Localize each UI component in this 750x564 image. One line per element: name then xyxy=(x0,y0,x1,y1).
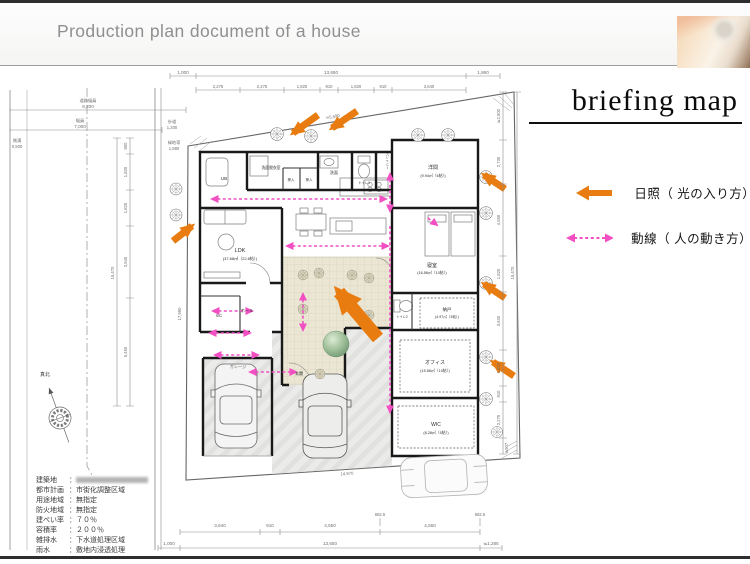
legend-sunlight: 日照（ 光の入り方） xyxy=(576,183,750,202)
svg-text:8,200: 8,200 xyxy=(82,104,94,109)
room-label-ub: UB xyxy=(221,176,227,181)
legend-circulation: 動線（ 人の動き方） xyxy=(566,228,750,247)
symbol-tree-green xyxy=(323,331,349,357)
svg-text:0,500: 0,500 xyxy=(12,144,23,149)
room-label-toilet1: トイレ1 xyxy=(358,181,370,185)
svg-text:道路幅員: 道路幅員 xyxy=(80,97,98,104)
svg-text:3,640: 3,640 xyxy=(214,523,226,528)
room-area-office: (15.56㎡（10帖）) xyxy=(420,368,450,373)
site-info-row: 建ぺい率：７０％ xyxy=(36,516,148,526)
svg-text:13,650: 13,650 xyxy=(324,70,338,75)
compass-icon xyxy=(39,384,80,446)
room-label-sanitary: 洗面脱衣室 xyxy=(262,165,281,170)
svg-text:17,990: 17,990 xyxy=(177,307,182,320)
svg-text:側溝: 側溝 xyxy=(13,137,22,144)
svg-text:3,640: 3,640 xyxy=(496,315,501,326)
slide-header: Production plan document of a house xyxy=(0,3,750,66)
site-info-row: 容積率：２００％ xyxy=(36,526,148,536)
orange-solid-arrow-icon xyxy=(576,185,612,201)
svg-text:4,550: 4,550 xyxy=(496,214,501,225)
slide: Production plan document of a house xyxy=(0,0,750,564)
room-label-wic: WIC xyxy=(431,422,441,428)
room-label-closet1: 押入 xyxy=(288,177,296,182)
svg-text:15,470: 15,470 xyxy=(110,266,115,279)
site-info-row: 雨水：敷地内浸透処理 xyxy=(36,546,148,556)
site-info-row: 建築地： xyxy=(36,476,148,486)
svg-text:2,275: 2,275 xyxy=(496,414,501,425)
svg-text:1,860: 1,860 xyxy=(477,70,489,75)
svg-text:3,640: 3,640 xyxy=(424,84,435,89)
room-label-sic: SIC xyxy=(216,313,223,318)
room-area-ldk: (37.68㎡（22.8帖）) xyxy=(223,255,258,261)
site-address-redacted xyxy=(76,477,148,483)
room-area-nando: (4.97㎡（3帖）) xyxy=(435,314,459,319)
svg-text:800: 800 xyxy=(123,142,128,150)
svg-text:1,880: 1,880 xyxy=(169,146,180,151)
room-label-bedroom: 寝室 xyxy=(427,262,437,269)
room-label-yoma: 洋間 xyxy=(428,164,438,171)
svg-text:≒2,500: ≒2,500 xyxy=(496,108,501,123)
svg-text:910: 910 xyxy=(266,523,274,528)
room-label-nando: 納戸 xyxy=(443,306,452,313)
site-info-row: 都市計画：市街化調整区域 xyxy=(36,486,148,496)
svg-text:2,275: 2,275 xyxy=(213,84,224,89)
room-label-toilet2: トイレ2 xyxy=(396,315,408,319)
pink-dashed-arrow-icon xyxy=(566,231,613,245)
legend-circulation-label: 動線（ 人の動き方） xyxy=(631,228,750,247)
photo-thumbnail xyxy=(677,16,750,68)
site-info-block: 建築地： 都市計画：市街化調整区域 用途地域：無指定 防火地域：無指定 建ぺい率… xyxy=(36,476,148,556)
svg-text:≒907: ≒907 xyxy=(504,442,509,453)
room-label-wash: 洗面 xyxy=(330,169,338,175)
svg-text:≒5,590: ≒5,590 xyxy=(325,113,340,120)
svg-text:≒1,285: ≒1,285 xyxy=(483,541,499,546)
svg-text:7,000: 7,000 xyxy=(74,124,86,129)
room-label-hall: ホール xyxy=(241,308,254,313)
svg-text:2,730: 2,730 xyxy=(496,156,501,167)
svg-text:1,820: 1,820 xyxy=(123,166,128,177)
room-label-closet2: 押入 xyxy=(306,177,314,182)
svg-text:歩道: 歩道 xyxy=(168,118,177,125)
site-info-row: 用途地域：無指定 xyxy=(36,496,148,506)
car-street xyxy=(400,454,488,498)
room-area-wic: (8.28㎡（5帖）) xyxy=(423,430,449,435)
svg-text:幅員: 幅員 xyxy=(76,117,85,124)
svg-text:1,000: 1,000 xyxy=(163,541,175,546)
site-info-row: 防火地域：無指定 xyxy=(36,506,148,516)
room-label-office: オフィス xyxy=(425,360,445,366)
legend-sunlight-label: 日照（ 光の入り方） xyxy=(634,183,750,202)
svg-text:1,820: 1,820 xyxy=(123,202,128,213)
svg-text:1,820: 1,820 xyxy=(496,362,501,373)
svg-text:4,550: 4,550 xyxy=(324,523,336,528)
room-label-entrance: 玄関 xyxy=(295,370,303,376)
compass-label: 真北 xyxy=(40,371,50,378)
room-label-garage: ガレージ xyxy=(230,363,247,370)
room-label-ldk: LDK xyxy=(235,248,246,254)
svg-text:5,460: 5,460 xyxy=(123,346,128,357)
svg-text:2,275: 2,275 xyxy=(257,84,268,89)
svg-text:682.5: 682.5 xyxy=(475,512,486,517)
slide-bottom-border xyxy=(0,556,750,559)
svg-text:4,550: 4,550 xyxy=(424,523,436,528)
svg-text:910: 910 xyxy=(380,84,388,89)
svg-text:1,820: 1,820 xyxy=(297,84,308,89)
svg-text:1,820: 1,820 xyxy=(351,84,362,89)
svg-text:1,000: 1,000 xyxy=(177,70,189,75)
svg-text:1,200: 1,200 xyxy=(167,125,178,130)
svg-text:682.5: 682.5 xyxy=(375,512,386,517)
svg-text:13,650: 13,650 xyxy=(323,541,337,546)
room-area-yoma: (9.94㎡（6帖）) xyxy=(420,173,446,178)
svg-text:910: 910 xyxy=(326,84,334,89)
svg-text:3,640: 3,640 xyxy=(123,256,128,267)
page-title: Production plan document of a house xyxy=(57,21,361,42)
car-garage xyxy=(211,364,261,448)
svg-text:1,820: 1,820 xyxy=(496,268,501,279)
svg-text:緑地帯: 緑地帯 xyxy=(168,139,181,146)
svg-text:14,970: 14,970 xyxy=(340,471,354,477)
room-area-bedroom: (16.56㎡（10帖）) xyxy=(417,270,447,275)
svg-text:910: 910 xyxy=(496,390,501,398)
room-label-pantry: パントリー xyxy=(385,152,390,170)
svg-text:15,470: 15,470 xyxy=(510,266,515,279)
briefing-map-title: briefing map xyxy=(529,84,742,124)
site-info-row: 雑排水：下水道処理区域 xyxy=(36,536,148,546)
car-driveway xyxy=(299,374,351,458)
